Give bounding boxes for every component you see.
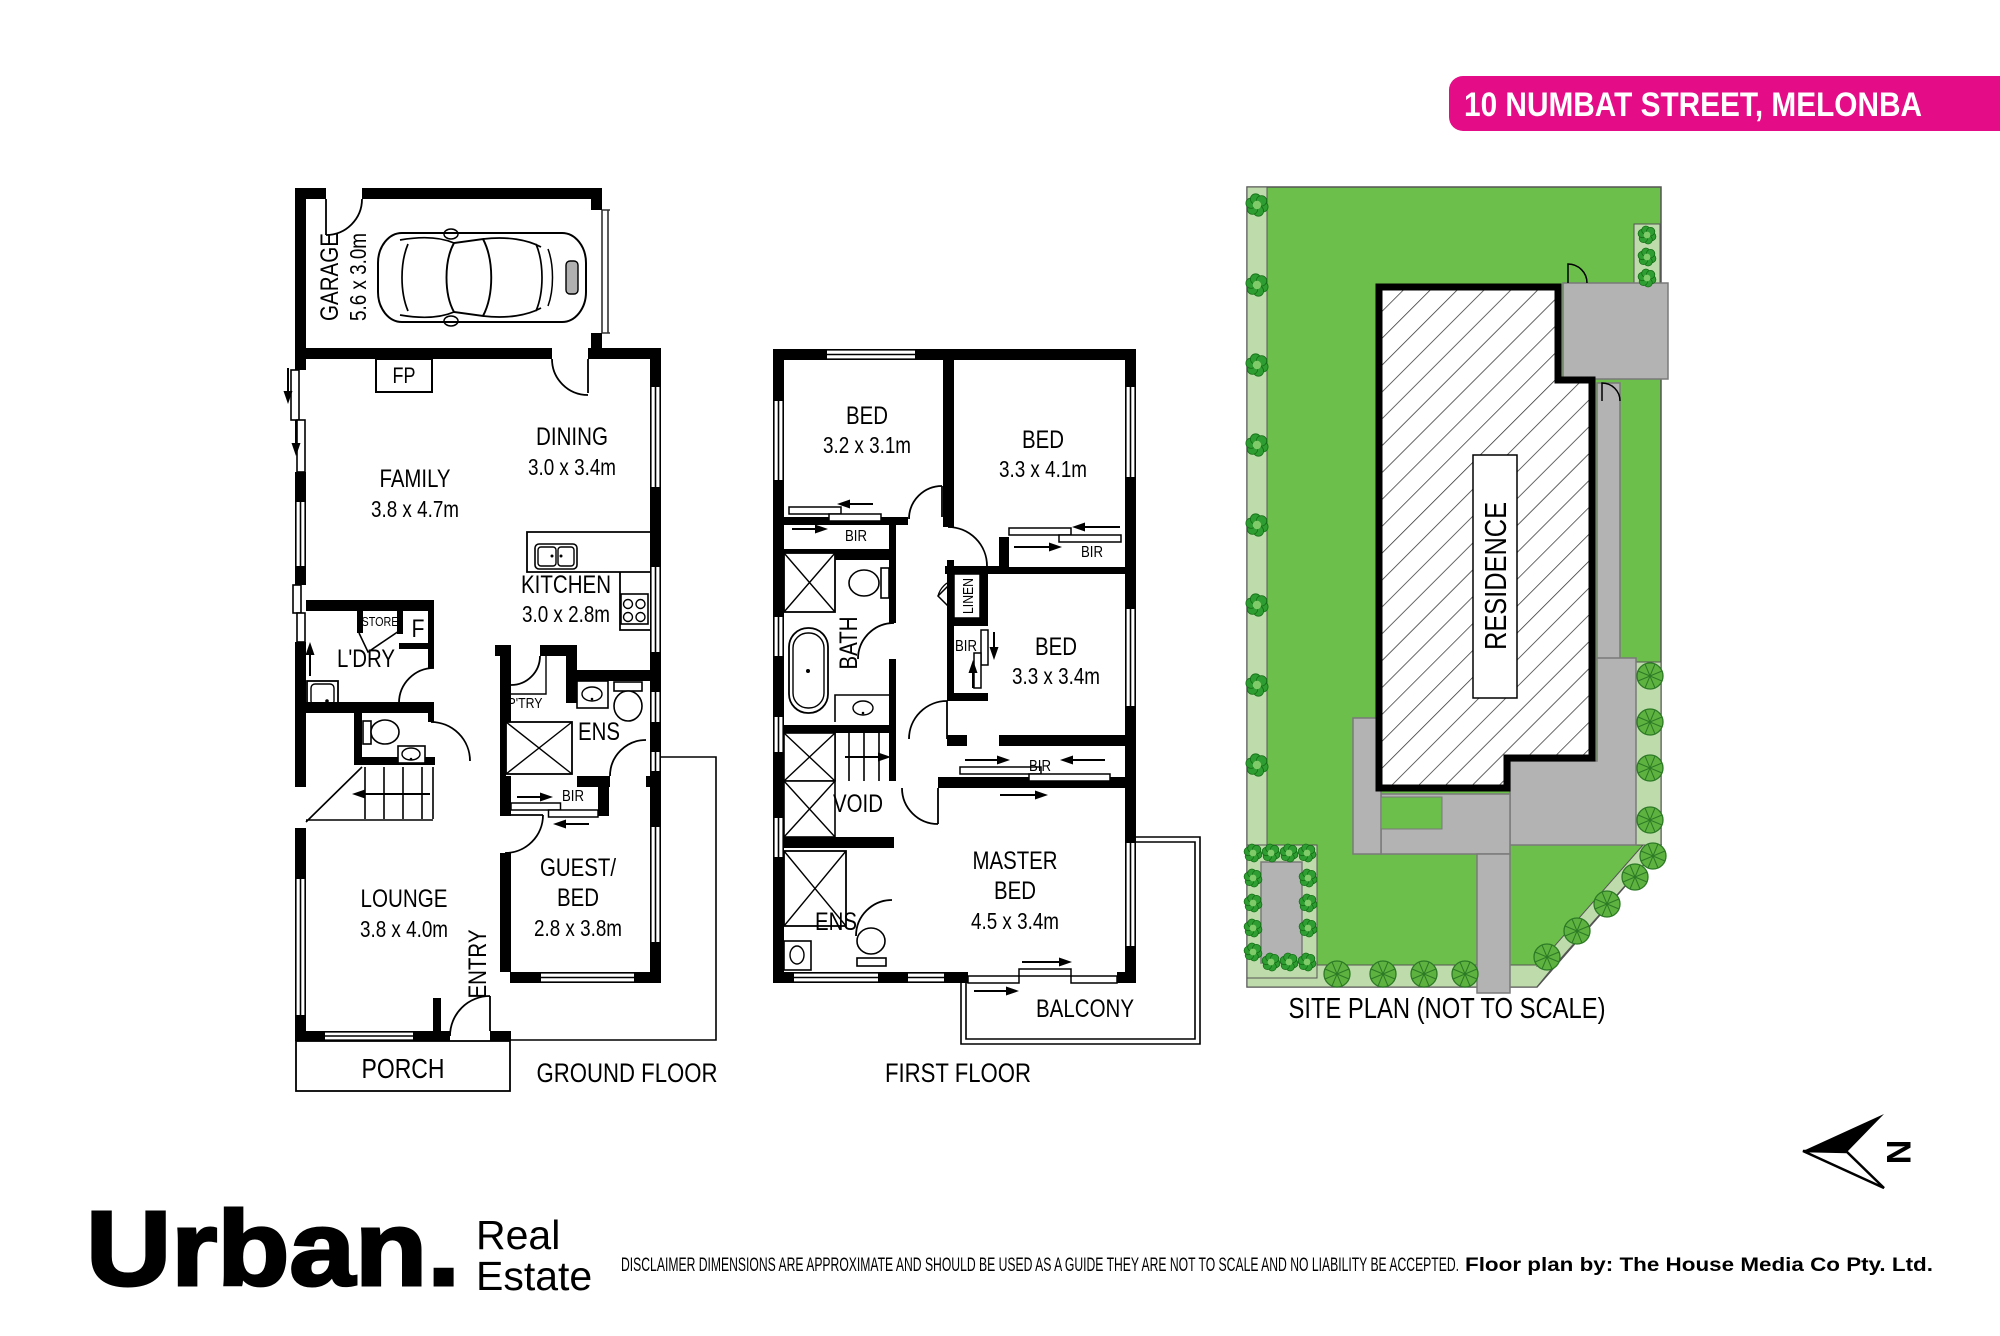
svg-text:RESIDENCE: RESIDENCE xyxy=(1478,502,1513,650)
svg-text:P'TRY: P'TRY xyxy=(508,695,543,712)
svg-text:GARAGE: GARAGE xyxy=(316,233,344,321)
svg-text:BIR: BIR xyxy=(1081,544,1103,561)
svg-text:GUEST/: GUEST/ xyxy=(540,854,616,882)
svg-text:N: N xyxy=(1879,1140,1917,1165)
svg-text:5.6 x 3.0m: 5.6 x 3.0m xyxy=(345,233,371,321)
svg-text:10 NUMBAT STREET, MELONBA: 10 NUMBAT STREET, MELONBA xyxy=(1464,86,1922,124)
svg-text:GROUND FLOOR: GROUND FLOOR xyxy=(537,1058,718,1088)
svg-text:3.8 x 4.7m: 3.8 x 4.7m xyxy=(371,496,459,522)
svg-text:PORCH: PORCH xyxy=(362,1053,445,1084)
svg-text:DINING: DINING xyxy=(536,423,608,451)
svg-text:BIR: BIR xyxy=(845,528,867,545)
svg-text:BATH: BATH xyxy=(835,617,863,670)
svg-text:STORE: STORE xyxy=(362,614,399,629)
svg-text:L'DRY: L'DRY xyxy=(337,645,395,673)
svg-text:BED: BED xyxy=(1022,426,1064,454)
svg-text:BIR: BIR xyxy=(562,788,584,805)
svg-text:BALCONY: BALCONY xyxy=(1036,995,1134,1023)
svg-text:DISCLAIMER DIMENSIONS ARE APPR: DISCLAIMER DIMENSIONS ARE APPROXIMATE AN… xyxy=(621,1255,1933,1276)
svg-text:LINEN: LINEN xyxy=(960,578,977,614)
svg-text:2.8 x 3.8m: 2.8 x 3.8m xyxy=(534,915,622,941)
svg-text:Real: Real xyxy=(476,1212,560,1258)
svg-text:BIR: BIR xyxy=(1029,758,1051,775)
svg-text:MASTER: MASTER xyxy=(973,847,1058,875)
svg-text:3.8 x 4.0m: 3.8 x 4.0m xyxy=(360,916,448,942)
svg-text:ENS: ENS xyxy=(815,908,857,936)
svg-text:FIRST FLOOR: FIRST FLOOR xyxy=(885,1058,1031,1088)
svg-text:ENTRY: ENTRY xyxy=(464,929,492,998)
svg-text:3.3 x 3.4m: 3.3 x 3.4m xyxy=(1012,663,1100,689)
svg-text:BED: BED xyxy=(1035,633,1077,661)
svg-text:LOUNGE: LOUNGE xyxy=(361,885,448,913)
svg-text:3.0 x 2.8m: 3.0 x 2.8m xyxy=(522,601,610,627)
svg-text:VOID: VOID xyxy=(833,790,883,818)
svg-text:3.2 x 3.1m: 3.2 x 3.1m xyxy=(823,432,911,458)
svg-text:BED: BED xyxy=(994,877,1036,905)
svg-text:KITCHEN: KITCHEN xyxy=(521,571,611,599)
svg-text:BED: BED xyxy=(846,402,888,430)
svg-text:SITE PLAN (NOT TO SCALE): SITE PLAN (NOT TO SCALE) xyxy=(1289,993,1606,1025)
svg-text:Urban.: Urban. xyxy=(86,1190,460,1308)
svg-text:3.0 x 3.4m: 3.0 x 3.4m xyxy=(528,454,616,480)
svg-text:FAMILY: FAMILY xyxy=(380,465,451,493)
svg-text:4.5 x 3.4m: 4.5 x 3.4m xyxy=(971,908,1059,934)
svg-text:3.3 x 4.1m: 3.3 x 4.1m xyxy=(999,456,1087,482)
svg-text:ENS: ENS xyxy=(578,718,620,746)
svg-text:BED: BED xyxy=(557,884,599,912)
svg-text:FP: FP xyxy=(393,363,416,388)
svg-text:F: F xyxy=(412,615,425,643)
svg-text:Estate: Estate xyxy=(476,1253,592,1299)
